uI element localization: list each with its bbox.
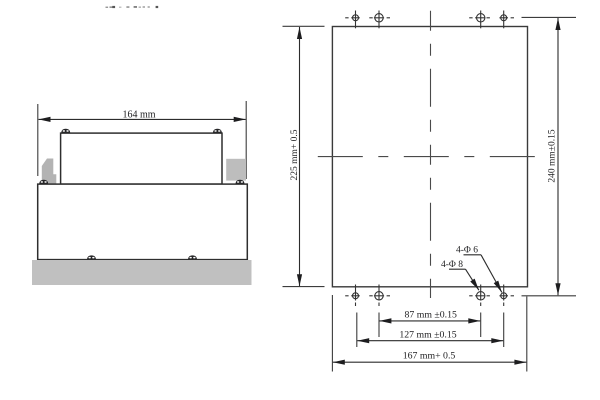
svg-text:4-Φ 6: 4-Φ 6 <box>456 246 478 256</box>
svg-text:87 mm ±0.15: 87 mm ±0.15 <box>404 309 457 320</box>
svg-text:167 mm+ 0.5: 167 mm+ 0.5 <box>403 350 456 361</box>
svg-text:240 mm±0.15: 240 mm±0.15 <box>548 129 558 182</box>
svg-text:127 mm ±0.15: 127 mm ±0.15 <box>399 329 456 340</box>
svg-text:4-Φ 8: 4-Φ 8 <box>441 260 463 270</box>
svg-text:225 mm+ 0.5: 225 mm+ 0.5 <box>290 129 300 180</box>
svg-text:164 mm: 164 mm <box>122 109 155 120</box>
